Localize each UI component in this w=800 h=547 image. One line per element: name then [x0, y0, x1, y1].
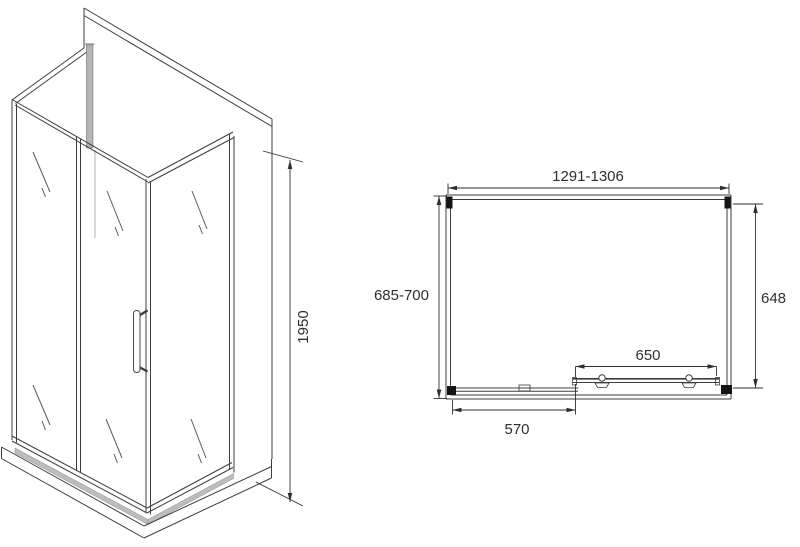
wall-profile-bottom-right — [721, 385, 732, 394]
drawing-page: 1950 — [0, 0, 800, 547]
extension-line — [256, 482, 303, 506]
door-handle — [134, 311, 148, 373]
plan-fixed-panel-dimension: 570 — [453, 384, 576, 438]
roller-symbol — [595, 375, 609, 388]
glass-marks — [33, 152, 207, 463]
plan-walls — [446, 195, 731, 399]
plan-fixed-panel — [456, 385, 578, 391]
left-side-glass — [12, 48, 88, 104]
plan-corner-profiles — [447, 197, 733, 396]
wall-profile-top-left — [447, 197, 453, 209]
wall-profile-top-right — [725, 197, 731, 209]
plan-door-dimension: 650 — [576, 347, 717, 377]
isometric-view: 1950 — [2, 8, 313, 538]
front-frame — [12, 100, 151, 525]
plan-right-glass-dimension: 648 — [733, 204, 786, 388]
extension-line — [263, 151, 303, 162]
plan-sliding-door — [573, 375, 720, 388]
plan-width-dimension: 1291-1306 — [448, 168, 729, 194]
technical-drawing: 1950 — [0, 0, 800, 547]
plan-depth-label: 685-700 — [374, 287, 429, 304]
wall-profile-post — [85, 44, 95, 238]
height-dimension: 1950 — [256, 151, 312, 506]
roller-symbol — [682, 375, 696, 388]
back-wall-panel — [84, 8, 272, 459]
plan-fixed-panel-label: 570 — [504, 421, 529, 438]
base-tray — [2, 447, 272, 538]
door-bottom-rail — [15, 448, 148, 525]
plan-door-label: 650 — [635, 347, 660, 364]
plan-width-label: 1291-1306 — [552, 168, 624, 185]
side-bottom-rail — [148, 474, 234, 525]
plan-right-glass-label: 648 — [761, 290, 786, 307]
plan-depth-dimension: 685-700 — [374, 196, 447, 399]
plan-view: 1291-1306 685-700 648 650 57 — [374, 168, 786, 438]
handle-bar — [134, 311, 141, 373]
height-dimension-label: 1950 — [295, 310, 312, 343]
right-side-frame — [147, 132, 234, 525]
wall-profile-bottom-left — [447, 386, 456, 395]
